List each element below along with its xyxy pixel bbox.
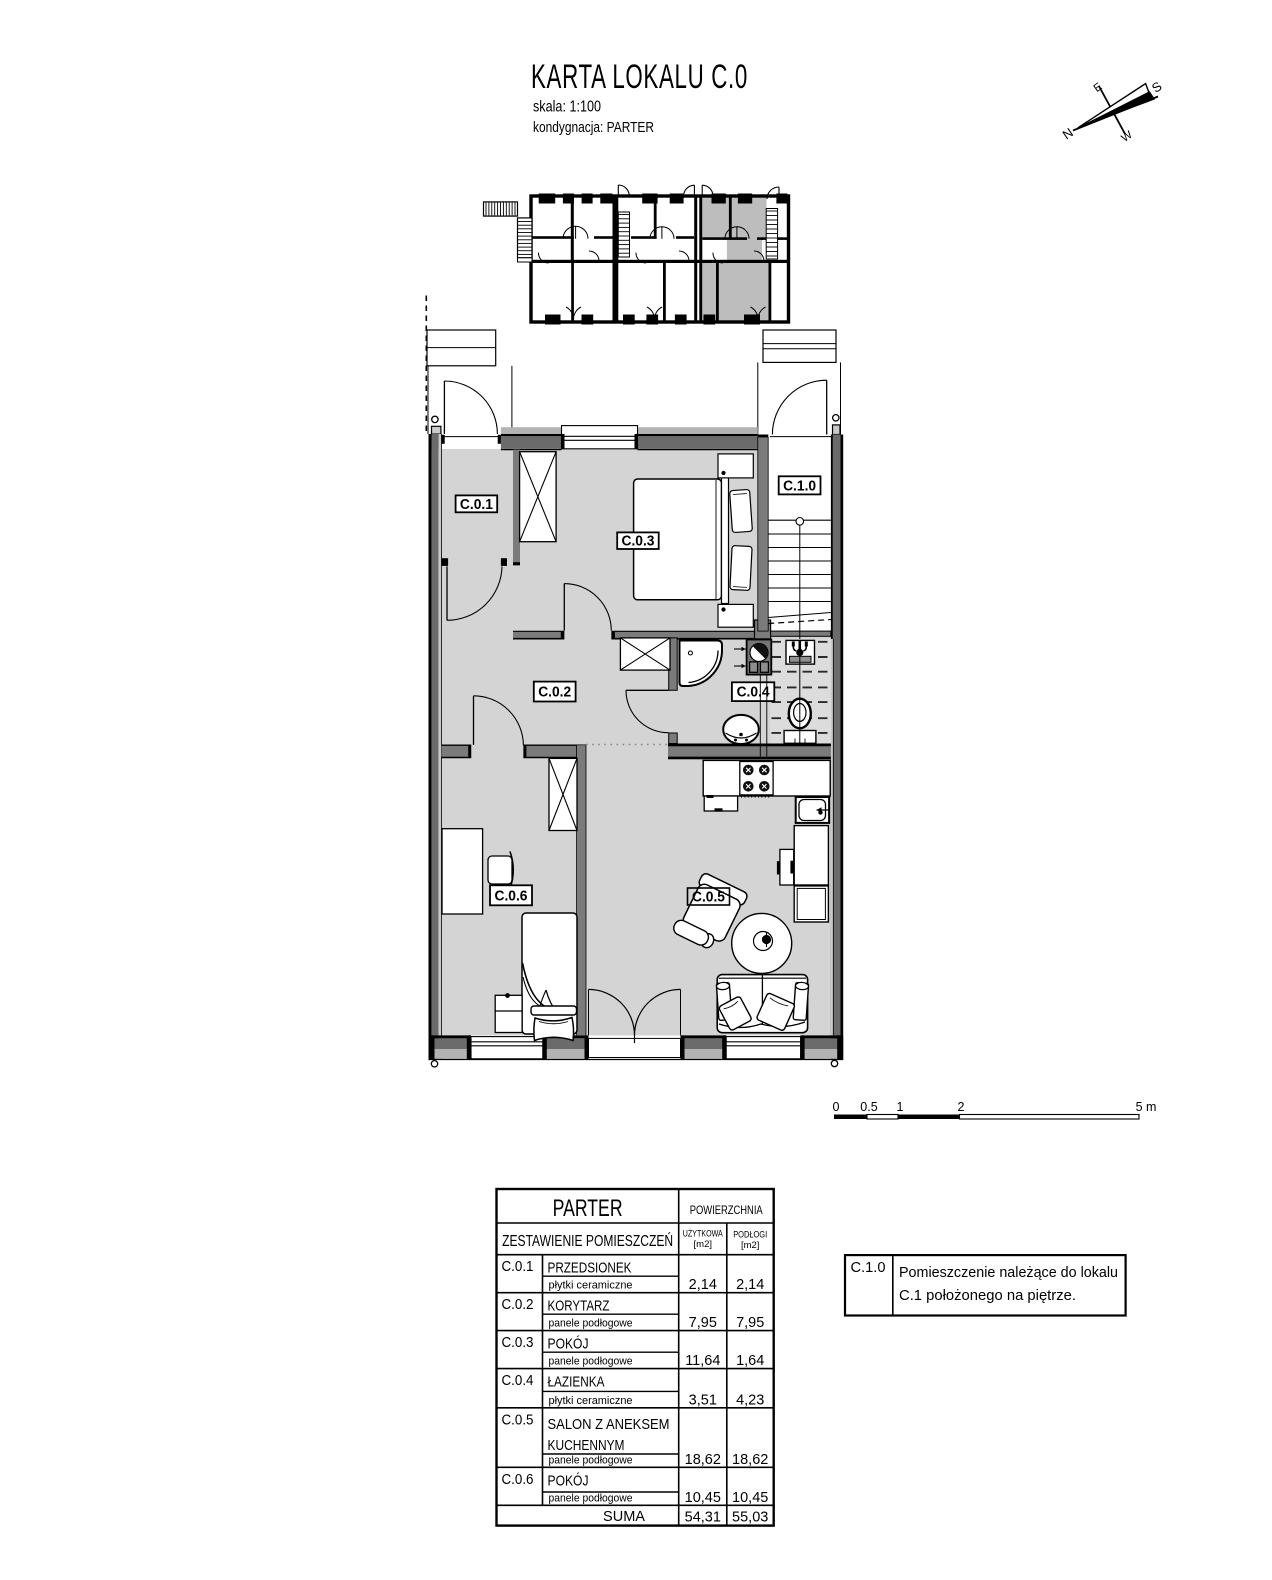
svg-text:panele podłogowe: panele podłogowe — [549, 1318, 633, 1330]
svg-text:kondygnacja: PARTER: kondygnacja: PARTER — [533, 119, 654, 136]
svg-text:C.0.2: C.0.2 — [538, 685, 571, 701]
svg-text:7,95: 7,95 — [736, 1315, 764, 1331]
svg-text:C.1 położonego na piętrze.: C.1 położonego na piętrze. — [899, 1288, 1076, 1304]
svg-text:C.0.3: C.0.3 — [622, 534, 655, 550]
svg-text:panele podłogowe: panele podłogowe — [549, 1492, 633, 1504]
svg-text:C.0.3: C.0.3 — [502, 1335, 534, 1351]
svg-text:panele podłogowe: panele podłogowe — [549, 1356, 633, 1368]
svg-text:3,51: 3,51 — [689, 1392, 717, 1408]
svg-text:C.0.5: C.0.5 — [502, 1412, 534, 1428]
svg-text:C.0.4: C.0.4 — [737, 684, 770, 700]
svg-text:KARTA LOKALU C.0: KARTA LOKALU C.0 — [531, 58, 748, 96]
svg-text:C.0.5: C.0.5 — [692, 889, 725, 905]
svg-text:54,31: 54,31 — [685, 1510, 721, 1526]
svg-text:płytki ceramiczne: płytki ceramiczne — [549, 1395, 633, 1407]
svg-text:5 m: 5 m — [1136, 1100, 1157, 1114]
svg-text:PODŁOGI: PODŁOGI — [733, 1230, 767, 1241]
svg-text:SUMA: SUMA — [603, 1508, 645, 1525]
svg-text:C.0.4: C.0.4 — [502, 1373, 534, 1389]
svg-text:1,64: 1,64 — [736, 1353, 764, 1369]
svg-text:SALON Z ANEKSEM: SALON Z ANEKSEM — [548, 1416, 670, 1433]
svg-text:KUCHENNYM: KUCHENNYM — [548, 1437, 625, 1454]
svg-text:7,95: 7,95 — [689, 1315, 717, 1331]
svg-text:0: 0 — [833, 1100, 840, 1114]
svg-text:Pomieszczenie należące do l: Pomieszczenie należące do lokalu — [899, 1265, 1118, 1281]
svg-text:18,62: 18,62 — [685, 1452, 721, 1468]
svg-text:UŻYTKOWA: UŻYTKOWA — [683, 1229, 723, 1240]
svg-text:PRZEDSIONEK: PRZEDSIONEK — [548, 1260, 632, 1277]
svg-text:C.1.0: C.1.0 — [851, 1260, 886, 1276]
svg-text:C.0.2: C.0.2 — [502, 1297, 534, 1313]
svg-text:C.0.6: C.0.6 — [495, 888, 528, 904]
svg-text:C.0.1: C.0.1 — [460, 497, 493, 513]
svg-text:POWIERZCHNIA: POWIERZCHNIA — [690, 1203, 763, 1217]
svg-text:PARTER: PARTER — [553, 1195, 623, 1222]
svg-text:55,03: 55,03 — [732, 1510, 768, 1526]
svg-text:2,14: 2,14 — [736, 1277, 764, 1293]
svg-text:C.0.6: C.0.6 — [502, 1472, 534, 1488]
svg-text:4,23: 4,23 — [736, 1392, 764, 1408]
svg-text:2: 2 — [958, 1100, 965, 1114]
svg-text:10,45: 10,45 — [732, 1490, 768, 1506]
svg-text:[m2]: [m2] — [741, 1240, 759, 1251]
svg-text:11,64: 11,64 — [685, 1353, 720, 1369]
svg-text:ZESTAWIENIE POMIESZCZEŃ: ZESTAWIENIE POMIESZCZEŃ — [502, 1231, 673, 1250]
svg-text:skala: 1:100: skala: 1:100 — [533, 99, 601, 116]
svg-text:ŁAZIENKA: ŁAZIENKA — [548, 1374, 605, 1391]
svg-text:[m2]: [m2] — [694, 1239, 712, 1250]
svg-text:2,14: 2,14 — [689, 1277, 717, 1293]
svg-text:POKÓJ: POKÓJ — [548, 1472, 589, 1489]
svg-text:panele podłogowe: panele podłogowe — [549, 1454, 633, 1466]
svg-text:KORYTARZ: KORYTARZ — [548, 1298, 610, 1315]
svg-text:0.5: 0.5 — [860, 1100, 877, 1114]
svg-text:10,45: 10,45 — [685, 1490, 721, 1506]
svg-text:18,62: 18,62 — [732, 1452, 768, 1468]
svg-text:płytki ceramiczne: płytki ceramiczne — [549, 1280, 633, 1292]
svg-text:POKÓJ: POKÓJ — [548, 1336, 589, 1353]
svg-text:C.0.1: C.0.1 — [502, 1259, 534, 1275]
svg-text:1: 1 — [897, 1100, 904, 1114]
svg-text:C.1.0: C.1.0 — [783, 479, 816, 495]
